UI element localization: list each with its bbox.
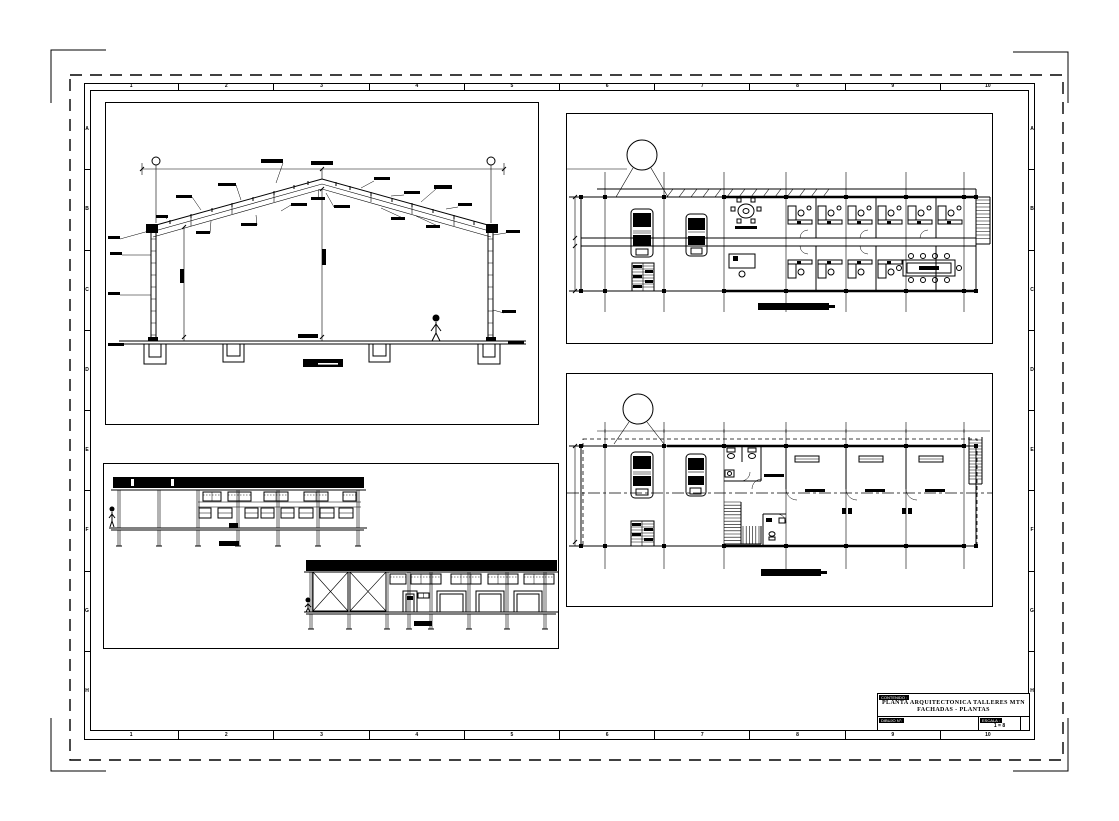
stair bbox=[632, 263, 654, 291]
garage-door bbox=[437, 591, 542, 612]
escala-label: ESCALA : bbox=[980, 718, 1002, 723]
grid-col-label: 1 bbox=[84, 731, 178, 740]
grid-band-left: A B C D E F G H bbox=[84, 90, 90, 731]
grid-row-label: G bbox=[1029, 571, 1035, 651]
escala-value: 1 = 8 bbox=[994, 723, 1005, 731]
workshop-bays bbox=[752, 446, 945, 500]
plan-title-bar bbox=[761, 569, 827, 576]
grid-row-label: E bbox=[1029, 410, 1035, 490]
stair bbox=[631, 521, 654, 546]
grid-col-label: 6 bbox=[559, 731, 654, 740]
elevation-title-bar bbox=[414, 621, 432, 626]
viewport-cross-section bbox=[105, 102, 539, 425]
grid-col-label: 4 bbox=[369, 731, 464, 740]
grid-col-label: 10 bbox=[940, 731, 1035, 740]
grid-col-label: 2 bbox=[178, 83, 273, 90]
drawing-sheet: 1 2 3 4 5 6 7 8 9 10 1 2 3 4 5 6 7 8 9 1… bbox=[0, 0, 1119, 821]
grid-row-label: C bbox=[84, 250, 90, 330]
viewport-ground-floor-plan bbox=[566, 373, 993, 607]
grid-band-right: A B C D E F G H bbox=[1029, 90, 1035, 731]
viewport-elevations bbox=[103, 463, 559, 649]
stair bbox=[724, 502, 761, 544]
grid-col-label: 8 bbox=[749, 731, 844, 740]
car-top-view bbox=[686, 454, 706, 496]
grid-col-label: 2 bbox=[178, 731, 273, 740]
section-top-dimension bbox=[140, 161, 506, 179]
car-top-view bbox=[686, 214, 707, 256]
human-figure bbox=[431, 315, 441, 342]
elevations-drawing bbox=[104, 464, 558, 643]
grid-row-label: B bbox=[1029, 169, 1035, 249]
grid-row-label: D bbox=[84, 330, 90, 410]
sheet-title-line2: FACHADAS - PLANTAS bbox=[917, 707, 990, 714]
grid-col-label: 7 bbox=[654, 731, 749, 740]
grid-col-label: 9 bbox=[845, 83, 940, 90]
sheet-title-line1: PLANTA ARQUITECTONICA TALLERES MTN bbox=[882, 700, 1025, 707]
grid-row-label: C bbox=[1029, 250, 1035, 330]
grid-col-label: 5 bbox=[464, 731, 559, 740]
grid-row-label: A bbox=[84, 90, 90, 169]
cross-section-drawing bbox=[106, 103, 538, 419]
grid-row-label: G bbox=[84, 571, 90, 651]
grid-bubble bbox=[614, 394, 664, 444]
grid-col-label: 5 bbox=[464, 83, 559, 90]
grid-row-label: F bbox=[84, 490, 90, 570]
grid-col-label: 1 bbox=[84, 83, 178, 90]
grid-col-label: 6 bbox=[559, 83, 654, 90]
grid-col-label: 3 bbox=[273, 731, 368, 740]
plan-grid-lines bbox=[567, 169, 990, 312]
grid-col-label: 4 bbox=[369, 83, 464, 90]
contenido-label: CONTENIDO : bbox=[879, 695, 909, 700]
section-floor-line bbox=[119, 341, 526, 344]
stair bbox=[976, 197, 990, 244]
grid-row-label: D bbox=[1029, 330, 1035, 410]
grid-row-label: E bbox=[84, 410, 90, 490]
title-block: CONTENIDO : PLANTA ARQUITECTONICA TALLER… bbox=[877, 693, 1030, 731]
toilet-room bbox=[763, 514, 786, 546]
grid-col-label: 9 bbox=[845, 731, 940, 740]
title-block-empty-cell bbox=[1020, 717, 1029, 731]
car-top-view bbox=[631, 209, 653, 257]
car-top-view bbox=[631, 452, 653, 498]
plan-title-bar bbox=[758, 303, 835, 310]
elevation-title-bar bbox=[219, 541, 239, 546]
grid-row-label: F bbox=[1029, 490, 1035, 570]
grid-row-label: H bbox=[84, 651, 90, 731]
front-elevation bbox=[304, 560, 558, 629]
grid-row-label: A bbox=[1029, 90, 1035, 169]
grid-col-label: 8 bbox=[749, 83, 844, 90]
grid-band-bottom: 1 2 3 4 5 6 7 8 9 10 bbox=[84, 731, 1035, 740]
section-title-bar bbox=[303, 359, 343, 367]
bathroom bbox=[724, 446, 784, 481]
window bbox=[203, 492, 356, 501]
viewport-upper-floor-plan bbox=[566, 113, 993, 344]
rear-elevation bbox=[109, 477, 367, 546]
grid-col-label: 10 bbox=[940, 83, 1035, 90]
grid-col-label: 7 bbox=[654, 83, 749, 90]
human-figure bbox=[109, 507, 115, 528]
section-annotations bbox=[108, 159, 524, 346]
ground-floor-plan-drawing bbox=[567, 374, 992, 601]
upper-floor-plan-drawing bbox=[567, 114, 992, 338]
window bbox=[199, 508, 353, 518]
dibujo-label: DIBUJO N°: bbox=[879, 718, 904, 723]
x-brace-panel bbox=[313, 572, 386, 611]
round-meeting-table bbox=[731, 198, 761, 229]
grid-row-label: B bbox=[84, 169, 90, 249]
grid-col-label: 3 bbox=[273, 83, 368, 90]
grid-bubble bbox=[616, 140, 668, 197]
grid-band-top: 1 2 3 4 5 6 7 8 9 10 bbox=[84, 83, 1035, 90]
